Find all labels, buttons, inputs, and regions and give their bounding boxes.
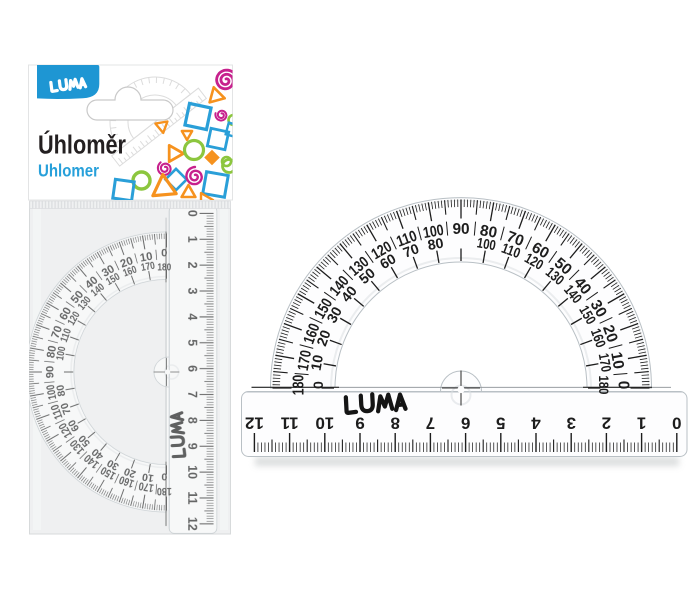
svg-text:Úhloměr: Úhloměr [38, 130, 126, 160]
svg-text:Uhlomer: Uhlomer [38, 161, 99, 181]
